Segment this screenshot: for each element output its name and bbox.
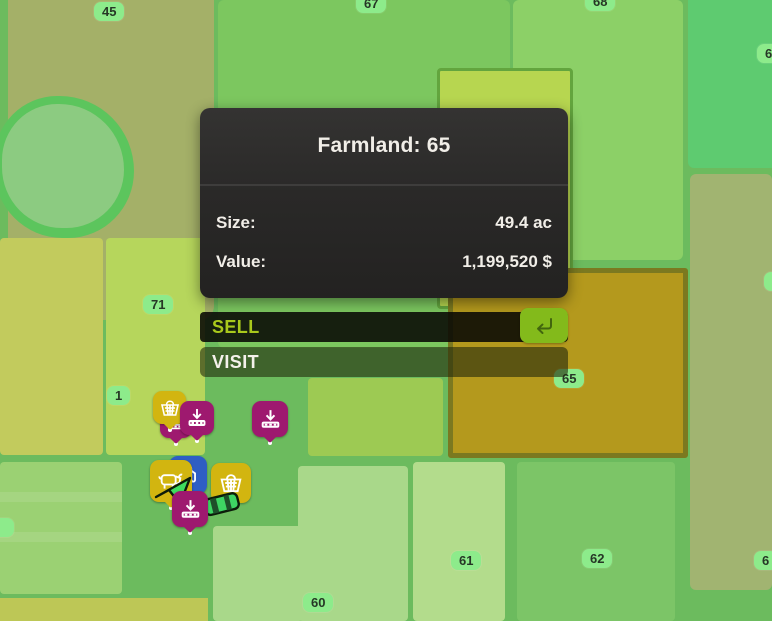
visit-button-label: VISIT (200, 352, 259, 373)
field-label-6-top-right: 6 (757, 44, 772, 63)
value-value: 1,199,520 $ (462, 252, 552, 272)
field-right-top[interactable] (688, 0, 772, 168)
farmland-tooltip-title: Farmland: 65 (200, 108, 568, 186)
field-label-60: 60 (303, 593, 333, 612)
value-label: Value: (216, 252, 266, 272)
field-label-1: 1 (107, 386, 130, 405)
farmland-map: 45 67 68 6 71 1 65 60 61 62 6 Farmland: … (0, 0, 772, 621)
size-value: 49.4 ac (495, 213, 552, 233)
sell-button[interactable]: SELL (200, 312, 568, 342)
field-left-column[interactable] (0, 238, 103, 455)
unloading-point-icon[interactable] (172, 491, 208, 527)
size-label: Size: (216, 213, 256, 233)
field-label-45: 45 (94, 2, 124, 21)
field-label-61: 61 (451, 551, 481, 570)
field-label-6-bottom-right: 6 (754, 551, 772, 570)
field-62[interactable] (517, 462, 675, 621)
unloading-point-icon[interactable] (180, 401, 214, 435)
sell-button-label: SELL (200, 317, 260, 338)
visit-button[interactable]: VISIT (200, 347, 568, 377)
field-61[interactable] (413, 462, 505, 621)
farmland-tooltip: Farmland: 65 Size: 49.4 ac Value: 1,199,… (200, 108, 568, 298)
field-label-left-edge (0, 518, 14, 537)
field-bottom-left-strip[interactable] (0, 598, 208, 621)
return-key-icon[interactable] (520, 308, 568, 343)
field-label-62: 62 (582, 549, 612, 568)
field-label-71: 71 (143, 295, 173, 314)
unloading-point-icon[interactable] (252, 401, 288, 437)
field-right-olive[interactable] (690, 174, 772, 590)
field-60-b[interactable] (213, 526, 303, 621)
field-mid-yellow[interactable] (308, 378, 443, 456)
field-label-67: 67 (356, 0, 386, 13)
field-label-68: 68 (585, 0, 615, 11)
field-bottom-left[interactable] (0, 462, 122, 594)
field-label-mid-right (764, 272, 772, 291)
